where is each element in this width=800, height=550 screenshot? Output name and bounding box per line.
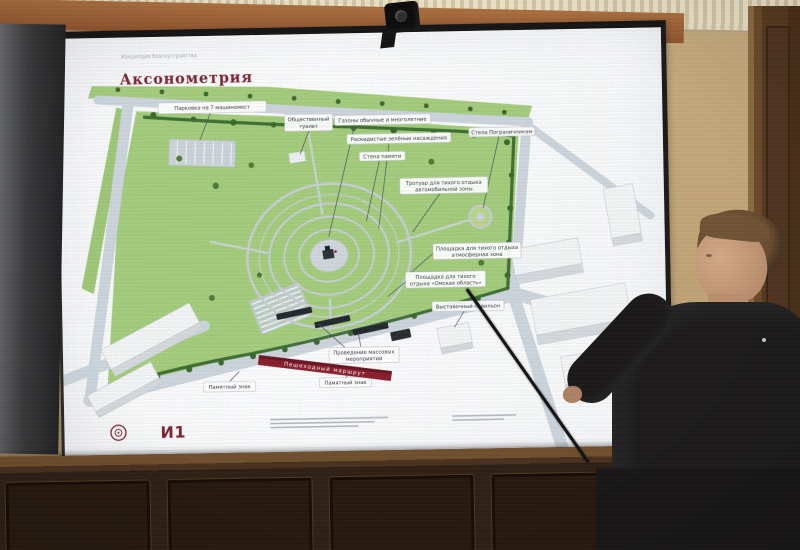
map-label-greenery: Раскидистые зелёные насаждения xyxy=(347,132,451,144)
map-label-sign-1: Памятный знак xyxy=(204,381,256,392)
presenter-eye xyxy=(706,254,712,257)
screen-side-dark-strip xyxy=(0,23,66,454)
wood-panel xyxy=(653,469,799,550)
wood-wainscot xyxy=(0,443,800,550)
parking-lot xyxy=(169,139,236,167)
svg-text:Стела Пограничникам: Стела Пограничникам xyxy=(471,129,532,136)
i1-logo: И1 xyxy=(160,422,186,441)
map-label-toilet: Общественный туалет xyxy=(284,114,332,132)
presenter-neck xyxy=(708,294,742,318)
wood-panel xyxy=(167,478,313,550)
svg-text:Выставочный павильон: Выставочный павильон xyxy=(436,302,501,310)
toilet-building xyxy=(289,151,306,163)
map-label-sign-2: Памятный знак xyxy=(319,377,371,388)
conference-room-photo: Концепция благоустройства Аксонометрия xyxy=(0,0,800,550)
svg-text:Проведение массовых: Проведение массовых xyxy=(333,349,394,356)
projection-screen: Концепция благоустройства Аксонометрия xyxy=(54,20,674,479)
wood-panel xyxy=(491,472,637,550)
svg-text:Памятный знак: Памятный знак xyxy=(208,383,250,391)
slide-axonometry: Концепция благоустройства Аксонометрия xyxy=(57,27,669,471)
wooden-door xyxy=(748,6,800,458)
svg-text:автомобильной зоны: автомобильной зоны xyxy=(415,185,473,193)
map-label-pavilion: Выставочный павильон xyxy=(432,300,504,311)
svg-text:мероприятий: мероприятий xyxy=(346,355,383,363)
map-label-parking: Парковка на 7 машиномест xyxy=(158,101,266,114)
wood-panel xyxy=(5,480,151,550)
map-label-quiet-area: Площадка для тихого отдыха атмосферная з… xyxy=(433,242,521,260)
svg-text:Памятный знак: Памятный знак xyxy=(324,379,366,387)
map-label-memory-wall: Стена памяти xyxy=(359,151,405,161)
map-label-lawns: Газоны обычные и многолетние xyxy=(334,114,430,126)
map-label-events: Проведение массовых мероприятий xyxy=(329,346,399,363)
map-label-omsk-area: Площадка для тихого отдыха «Омская облас… xyxy=(405,271,485,289)
svg-text:туалет: туалет xyxy=(299,124,318,130)
map-label-stela: Стела Пограничникам xyxy=(469,127,535,137)
small-plaza xyxy=(469,206,491,228)
monument-top xyxy=(325,245,331,251)
svg-text:атмосферная зона: атмосферная зона xyxy=(452,252,503,259)
map-label-quiet-path: Тротуар для тихого отдыха автомобильной … xyxy=(400,177,488,195)
slide-eyebrow: Концепция благоустройства xyxy=(121,52,197,60)
svg-text:Стена памяти: Стена памяти xyxy=(363,154,401,161)
slide-title: Аксонометрия xyxy=(120,69,253,89)
camera-device xyxy=(376,0,430,48)
svg-text:Общественный: Общественный xyxy=(288,116,330,124)
wood-panel xyxy=(329,475,475,550)
